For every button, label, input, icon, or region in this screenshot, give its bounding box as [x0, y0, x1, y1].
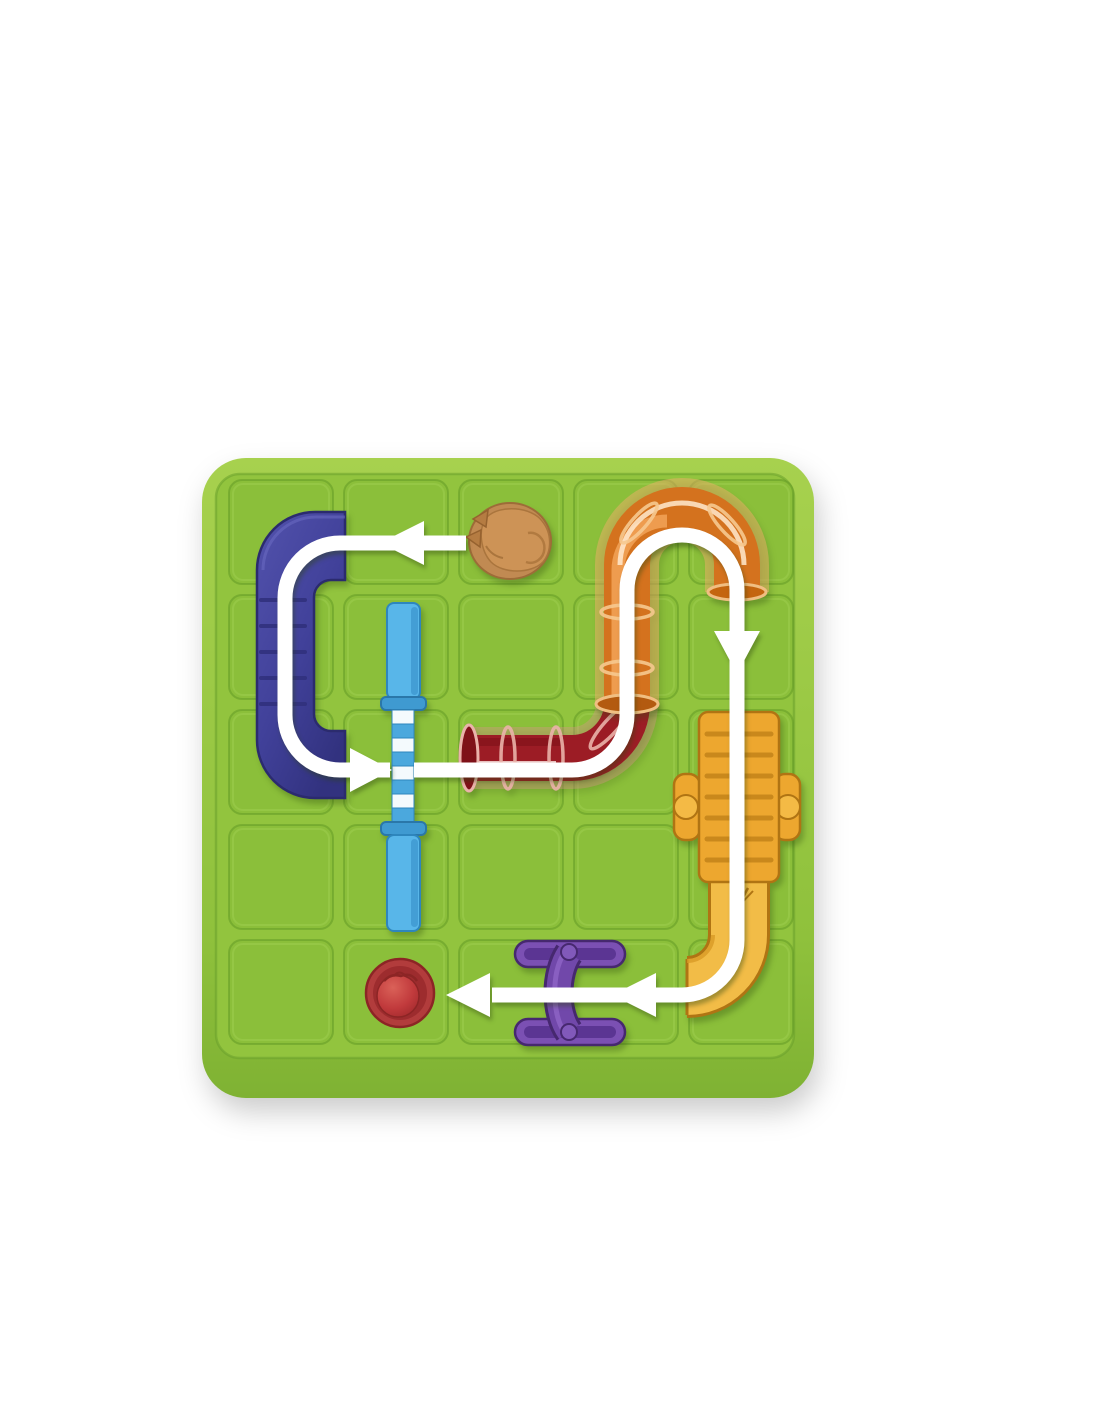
board-tile	[459, 825, 563, 929]
scene	[0, 0, 1100, 1422]
board-tile	[229, 825, 333, 929]
board-tile	[574, 825, 678, 929]
board-tile	[459, 595, 563, 699]
screenshot-canvas	[0, 0, 1100, 1422]
board-tile	[344, 480, 448, 584]
board-tile	[229, 940, 333, 1044]
red-nut-piece[interactable]	[366, 959, 434, 1027]
